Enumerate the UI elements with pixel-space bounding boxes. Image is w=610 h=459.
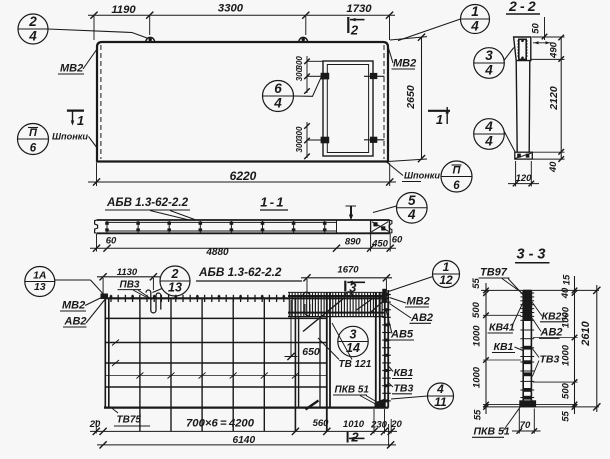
svg-text:МВ2: МВ2	[62, 300, 85, 312]
svg-text:650: 650	[302, 346, 320, 358]
svg-text:МВ2: МВ2	[393, 58, 416, 70]
svg-text:14: 14	[346, 341, 360, 355]
svg-text:4880: 4880	[205, 247, 229, 258]
svg-text:3: 3	[485, 48, 493, 63]
svg-text:55: 55	[471, 278, 482, 289]
svg-text:ПКВ 51: ПКВ 51	[474, 425, 510, 437]
svg-text:1670: 1670	[337, 265, 359, 276]
svg-text:4: 4	[273, 95, 282, 110]
svg-text:1730: 1730	[346, 3, 372, 15]
svg-text:КВ1: КВ1	[394, 367, 414, 379]
svg-text:5: 5	[408, 193, 416, 208]
svg-text:300: 300	[295, 139, 304, 153]
svg-text:1010: 1010	[343, 419, 365, 430]
svg-text:4: 4	[484, 62, 493, 77]
svg-text:МВ2: МВ2	[407, 296, 430, 308]
svg-text:1000: 1000	[472, 325, 483, 347]
svg-text:1-1: 1-1	[260, 195, 285, 210]
svg-text:700×6 = 4200: 700×6 = 4200	[186, 418, 255, 430]
svg-text:1190: 1190	[111, 4, 136, 16]
svg-text:500: 500	[560, 382, 571, 399]
svg-text:П: П	[453, 165, 462, 177]
svg-text:2610: 2610	[580, 320, 592, 346]
svg-text:КВ23: КВ23	[542, 310, 568, 322]
svg-text:500: 500	[471, 301, 482, 318]
svg-text:Шпонки: Шпонки	[404, 171, 440, 181]
svg-text:4: 4	[407, 207, 416, 222]
svg-text:6: 6	[453, 180, 460, 192]
svg-text:6: 6	[30, 143, 37, 155]
svg-text:4: 4	[470, 18, 479, 33]
svg-text:6220: 6220	[230, 169, 257, 183]
svg-text:АВ2: АВ2	[540, 327, 563, 339]
svg-text:13: 13	[34, 281, 46, 293]
svg-text:1: 1	[471, 4, 479, 19]
svg-text:АВ2: АВ2	[410, 312, 433, 324]
svg-text:КВ41: КВ41	[489, 321, 515, 333]
svg-text:1130: 1130	[117, 267, 138, 278]
svg-text:890: 890	[345, 237, 362, 248]
svg-text:1: 1	[77, 113, 84, 128]
svg-text:3: 3	[350, 328, 357, 342]
svg-text:АВ5: АВ5	[390, 329, 414, 341]
svg-text:12: 12	[439, 273, 453, 287]
svg-text:13: 13	[168, 280, 182, 294]
svg-text:1000: 1000	[472, 366, 483, 388]
svg-text:560: 560	[313, 418, 330, 429]
svg-text:ТВ3: ТВ3	[394, 382, 414, 394]
svg-text:2650: 2650	[405, 85, 417, 110]
svg-text:ТВ75: ТВ75	[117, 415, 142, 426]
svg-text:ТВ 121: ТВ 121	[339, 359, 372, 370]
svg-text:4: 4	[484, 133, 493, 148]
svg-text:АБВ 1.3-62-2.2: АБВ 1.3-62-2.2	[106, 196, 189, 209]
svg-text:40: 40	[560, 287, 571, 299]
svg-text:50: 50	[531, 23, 542, 34]
svg-text:П: П	[29, 127, 38, 139]
svg-text:1: 1	[436, 112, 443, 127]
svg-text:60: 60	[106, 236, 117, 247]
svg-text:6: 6	[274, 81, 282, 96]
svg-text:20: 20	[390, 419, 402, 430]
svg-text:6140: 6140	[232, 435, 255, 446]
svg-text:ПКВ 51: ПКВ 51	[335, 384, 370, 395]
svg-text:2: 2	[28, 14, 37, 29]
svg-text:490: 490	[549, 41, 560, 59]
svg-text:ПВ3: ПВ3	[120, 279, 140, 290]
svg-text:40: 40	[548, 161, 559, 173]
svg-text:2: 2	[350, 23, 359, 38]
svg-text:4: 4	[484, 119, 493, 134]
svg-text:300: 300	[295, 56, 304, 70]
svg-text:120: 120	[516, 173, 533, 184]
svg-text:АБВ 1.3-62-2.2: АБВ 1.3-62-2.2	[198, 265, 282, 279]
svg-text:ТВ3: ТВ3	[540, 353, 560, 365]
svg-text:20: 20	[89, 419, 101, 430]
svg-text:450: 450	[371, 239, 389, 250]
svg-text:АВ2: АВ2	[64, 315, 87, 327]
svg-text:55: 55	[560, 411, 571, 422]
svg-text:60: 60	[392, 235, 403, 246]
svg-text:2120: 2120	[548, 86, 560, 111]
svg-text:4: 4	[28, 28, 37, 43]
svg-text:Шпонки: Шпонки	[52, 131, 88, 141]
svg-text:2-2: 2-2	[508, 0, 539, 14]
svg-text:КВ1: КВ1	[494, 341, 514, 353]
svg-text:11: 11	[434, 395, 447, 409]
svg-text:230: 230	[370, 420, 388, 431]
svg-text:70: 70	[520, 420, 531, 431]
svg-text:2: 2	[350, 430, 359, 445]
svg-text:ТВ97: ТВ97	[480, 266, 508, 278]
svg-text:55: 55	[473, 409, 484, 420]
svg-text:МВ2: МВ2	[60, 63, 83, 75]
svg-text:1000: 1000	[560, 344, 571, 366]
svg-text:300: 300	[295, 126, 304, 140]
svg-text:300: 300	[295, 67, 304, 81]
svg-text:3300: 3300	[218, 3, 244, 15]
svg-text:15: 15	[562, 274, 573, 285]
svg-text:2: 2	[171, 267, 179, 281]
svg-text:3-3: 3-3	[517, 247, 550, 263]
